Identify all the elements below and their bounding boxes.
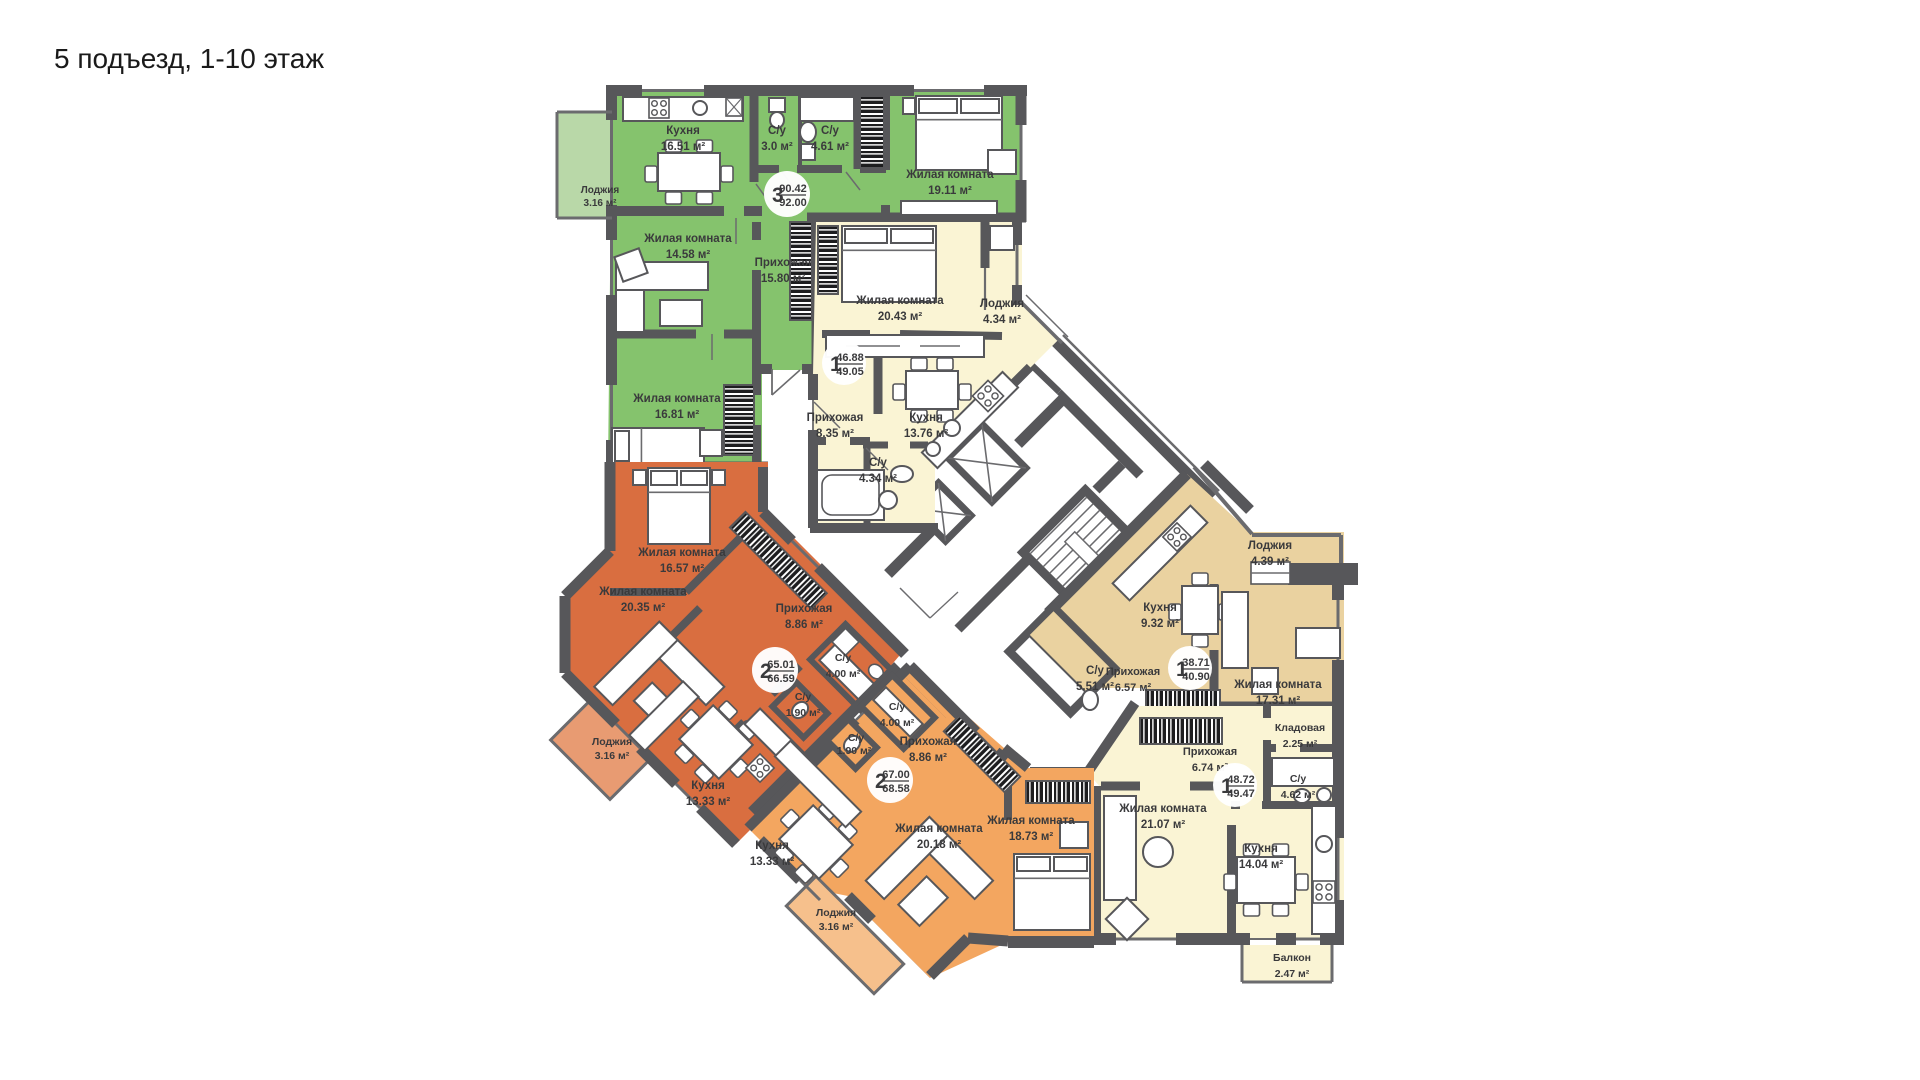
svg-text:14.58 м²: 14.58 м² xyxy=(666,249,710,261)
svg-text:92.00: 92.00 xyxy=(779,197,807,209)
svg-text:1.90 м²: 1.90 м² xyxy=(837,745,872,757)
svg-text:3.16 м²: 3.16 м² xyxy=(595,750,630,762)
svg-text:8.35 м²: 8.35 м² xyxy=(816,428,854,440)
svg-text:Жилая комната: Жилая комната xyxy=(986,815,1075,827)
svg-text:Жилая комната: Жилая комната xyxy=(632,393,721,405)
svg-text:20.18 м²: 20.18 м² xyxy=(917,839,961,851)
svg-text:20.43 м²: 20.43 м² xyxy=(878,311,922,323)
svg-text:Балкон: Балкон xyxy=(1273,952,1311,964)
svg-text:Прихожая: Прихожая xyxy=(755,257,812,269)
svg-text:Кухня: Кухня xyxy=(1143,602,1177,614)
svg-text:18.73 м²: 18.73 м² xyxy=(1009,831,1053,843)
svg-text:19.11 м²: 19.11 м² xyxy=(928,185,972,197)
svg-text:4.34 м²: 4.34 м² xyxy=(859,473,897,485)
svg-text:Жилая комната: Жилая комната xyxy=(598,586,687,598)
svg-text:4.00 м²: 4.00 м² xyxy=(826,668,861,680)
svg-text:3.16 м²: 3.16 м² xyxy=(819,921,854,933)
svg-text:Жилая комната: Жилая комната xyxy=(643,233,732,245)
svg-text:Лоджия: Лоджия xyxy=(592,736,632,748)
svg-text:Лоджия: Лоджия xyxy=(980,298,1024,310)
svg-text:С/у: С/у xyxy=(835,652,852,664)
svg-text:3.16 м²: 3.16 м² xyxy=(584,198,618,209)
svg-text:Лоджия: Лоджия xyxy=(581,185,620,196)
svg-text:4.39 м²: 4.39 м² xyxy=(1251,556,1289,568)
svg-text:Жилая комната: Жилая комната xyxy=(1233,679,1322,691)
svg-text:13.33 м²: 13.33 м² xyxy=(686,796,730,808)
svg-text:Жилая комната: Жилая комната xyxy=(894,823,983,835)
svg-text:68.58: 68.58 xyxy=(882,783,910,795)
svg-text:С/у: С/у xyxy=(795,691,812,703)
svg-text:С/у: С/у xyxy=(768,125,787,137)
svg-text:С/у: С/у xyxy=(848,732,865,744)
svg-text:Кладовая: Кладовая xyxy=(1275,722,1325,734)
svg-text:16.51 м²: 16.51 м² xyxy=(661,141,705,153)
svg-text:Жилая комната: Жилая комната xyxy=(637,547,726,559)
svg-text:49.47: 49.47 xyxy=(1227,788,1255,800)
svg-text:5 подъезд, 1-10 этаж: 5 подъезд, 1-10 этаж xyxy=(54,43,324,74)
svg-text:С/у: С/у xyxy=(1290,773,1307,785)
svg-text:9.32 м²: 9.32 м² xyxy=(1141,618,1179,630)
svg-text:48.72: 48.72 xyxy=(1227,774,1255,786)
svg-text:Кухня: Кухня xyxy=(909,412,943,424)
svg-text:8.86 м²: 8.86 м² xyxy=(785,619,823,631)
svg-text:Кухня: Кухня xyxy=(691,780,725,792)
svg-text:21.07 м²: 21.07 м² xyxy=(1141,819,1185,831)
svg-text:38.71: 38.71 xyxy=(1182,657,1210,669)
svg-text:Прихожая: Прихожая xyxy=(900,736,957,748)
svg-text:13.76 м²: 13.76 м² xyxy=(904,428,948,440)
svg-text:1.90 м²: 1.90 м² xyxy=(786,707,821,719)
svg-text:16.57 м²: 16.57 м² xyxy=(660,563,704,575)
svg-text:17.31 м²: 17.31 м² xyxy=(1256,695,1300,707)
svg-text:65.01: 65.01 xyxy=(767,659,795,671)
svg-text:С/у: С/у xyxy=(1086,665,1105,677)
svg-text:Прихожая: Прихожая xyxy=(776,603,833,615)
svg-text:Лоджия: Лоджия xyxy=(816,907,856,919)
svg-text:6.57 м²: 6.57 м² xyxy=(1115,682,1152,694)
svg-text:Жилая комната: Жилая комната xyxy=(855,295,944,307)
svg-text:3.0 м²: 3.0 м² xyxy=(761,141,793,153)
svg-text:4.61 м²: 4.61 м² xyxy=(811,141,849,153)
svg-text:46.88: 46.88 xyxy=(836,352,864,364)
svg-text:90.42: 90.42 xyxy=(779,183,807,195)
svg-text:67.00: 67.00 xyxy=(882,769,910,781)
svg-text:Прихожая: Прихожая xyxy=(1106,666,1160,678)
svg-text:66.59: 66.59 xyxy=(767,673,795,685)
svg-text:16.81 м²: 16.81 м² xyxy=(655,409,699,421)
svg-text:49.05: 49.05 xyxy=(836,366,864,378)
svg-text:4.62 м²: 4.62 м² xyxy=(1281,789,1316,801)
svg-text:2.47 м²: 2.47 м² xyxy=(1275,968,1310,980)
svg-text:4.00 м²: 4.00 м² xyxy=(880,717,915,729)
svg-text:Кухня: Кухня xyxy=(666,125,700,137)
svg-text:4.34 м²: 4.34 м² xyxy=(983,314,1021,326)
svg-text:С/у: С/у xyxy=(869,457,888,469)
svg-text:Кухня: Кухня xyxy=(755,840,789,852)
svg-text:Кухня: Кухня xyxy=(1244,843,1278,855)
svg-text:40.90: 40.90 xyxy=(1182,671,1210,683)
svg-text:Прихожая: Прихожая xyxy=(807,412,864,424)
svg-text:Жилая комната: Жилая комната xyxy=(1118,803,1207,815)
svg-text:С/у: С/у xyxy=(889,701,906,713)
svg-text:Лоджия: Лоджия xyxy=(1248,540,1292,552)
svg-text:Прихожая: Прихожая xyxy=(1183,746,1237,758)
svg-text:Жилая комната: Жилая комната xyxy=(905,169,994,181)
svg-text:5.51 м²: 5.51 м² xyxy=(1076,681,1114,693)
svg-text:15.80 м²: 15.80 м² xyxy=(761,273,805,285)
svg-text:8.86 м²: 8.86 м² xyxy=(909,752,947,764)
svg-text:2.25 м²: 2.25 м² xyxy=(1283,738,1318,750)
svg-text:13.33 м²: 13.33 м² xyxy=(750,856,794,868)
svg-text:С/у: С/у xyxy=(821,125,840,137)
svg-text:20.35 м²: 20.35 м² xyxy=(621,602,665,614)
svg-text:14.04 м²: 14.04 м² xyxy=(1239,859,1283,871)
